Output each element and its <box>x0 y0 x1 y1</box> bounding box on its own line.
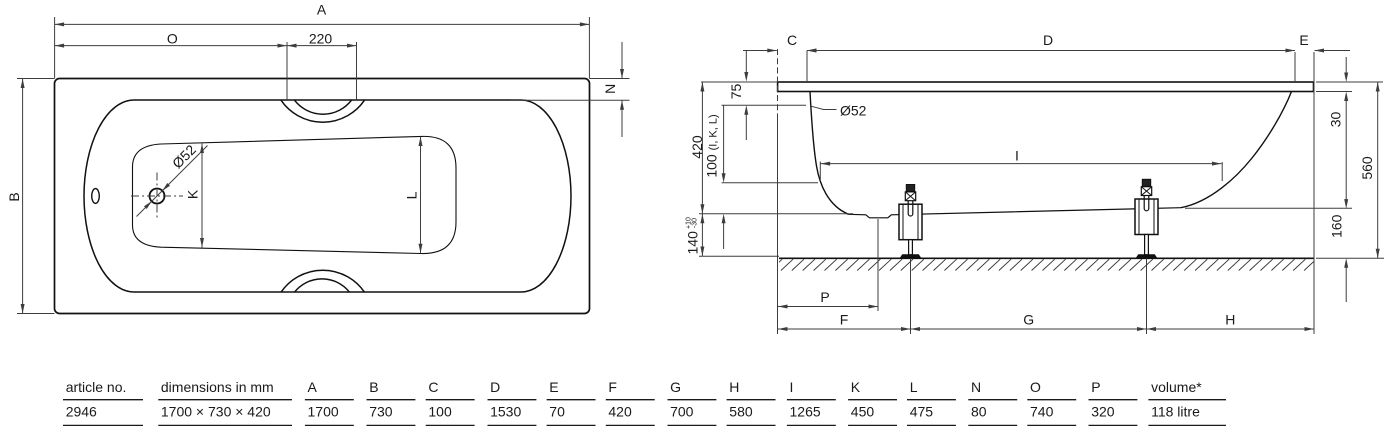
svg-text:volume*: volume* <box>1151 379 1202 395</box>
svg-text:G: G <box>1023 312 1034 328</box>
svg-text:O: O <box>1030 379 1041 395</box>
svg-text:E: E <box>549 379 558 395</box>
svg-text:B: B <box>6 192 22 201</box>
svg-text:L: L <box>404 191 420 199</box>
svg-text:700: 700 <box>670 404 694 420</box>
svg-text:Ø52: Ø52 <box>169 141 199 171</box>
svg-text:580: 580 <box>729 404 753 420</box>
svg-text:D: D <box>490 379 500 395</box>
svg-text:1700 × 730 × 420: 1700 × 730 × 420 <box>161 404 271 420</box>
svg-text:P: P <box>1091 379 1100 395</box>
svg-text:I: I <box>1015 148 1019 164</box>
svg-text:220: 220 <box>309 31 333 47</box>
svg-text:C: C <box>787 32 797 48</box>
svg-text:G: G <box>670 379 681 395</box>
svg-text:N: N <box>971 379 981 395</box>
svg-text:K: K <box>851 379 861 395</box>
svg-text:A: A <box>308 379 318 395</box>
svg-text:article no.: article no. <box>66 379 127 395</box>
svg-text:C: C <box>428 379 438 395</box>
svg-text:140: 140 <box>685 231 701 255</box>
svg-text:100: 100 <box>428 404 452 420</box>
svg-text:P: P <box>820 289 829 305</box>
svg-text:100 (I, K, L): 100 (I, K, L) <box>704 114 720 177</box>
svg-text:-30: -30 <box>692 218 699 228</box>
svg-text:30: 30 <box>1327 112 1343 128</box>
svg-text:450: 450 <box>851 404 875 420</box>
svg-text:F: F <box>608 379 617 395</box>
svg-text:1700: 1700 <box>308 404 339 420</box>
svg-text:dimensions in mm: dimensions in mm <box>161 379 274 395</box>
svg-text:A: A <box>317 2 327 18</box>
svg-text:D: D <box>1043 32 1053 48</box>
svg-text:B: B <box>369 379 378 395</box>
svg-text:70: 70 <box>549 404 565 420</box>
svg-text:H: H <box>729 379 739 395</box>
svg-text:80: 80 <box>971 404 987 420</box>
svg-text:475: 475 <box>910 404 934 420</box>
svg-text:118 litre: 118 litre <box>1151 404 1200 420</box>
svg-text:2946: 2946 <box>66 404 97 420</box>
svg-text:320: 320 <box>1091 404 1115 420</box>
svg-text:Ø52: Ø52 <box>840 103 867 119</box>
svg-text:F: F <box>840 312 849 328</box>
svg-text:K: K <box>185 189 201 199</box>
svg-text:75: 75 <box>728 84 744 100</box>
svg-text:740: 740 <box>1030 404 1054 420</box>
svg-text:420: 420 <box>608 404 632 420</box>
svg-text:1265: 1265 <box>790 404 821 420</box>
svg-text:1530: 1530 <box>490 404 521 420</box>
svg-text:L: L <box>910 379 918 395</box>
svg-text:I: I <box>790 379 794 395</box>
svg-text:560: 560 <box>1359 156 1375 180</box>
svg-text:E: E <box>1299 32 1308 48</box>
svg-text:160: 160 <box>1329 214 1345 238</box>
svg-text:730: 730 <box>369 404 393 420</box>
svg-text:O: O <box>167 31 178 47</box>
svg-text:H: H <box>1225 312 1235 328</box>
svg-text:N: N <box>602 84 618 94</box>
